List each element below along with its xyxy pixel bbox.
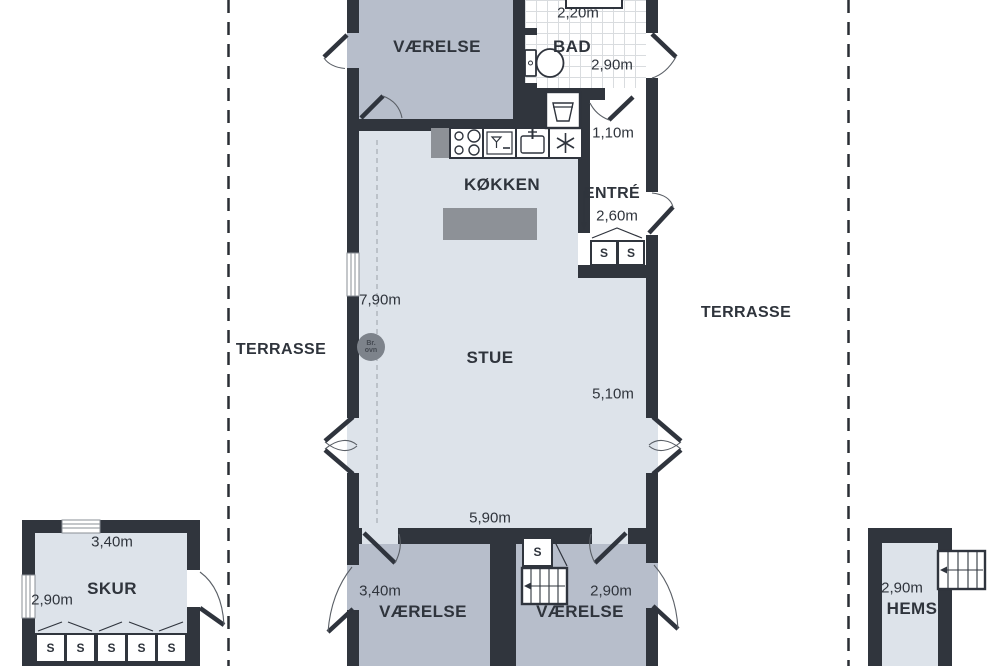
wardrobe-label: S — [167, 641, 175, 655]
wood-stove-label: ovn — [365, 347, 377, 354]
wardrobe-box: S — [617, 240, 645, 266]
wardrobe-label: S — [600, 246, 608, 260]
wall — [646, 473, 658, 563]
room-label-bad: BAD — [553, 37, 591, 57]
door-gap — [347, 418, 359, 473]
wardrobe-label: S — [533, 545, 541, 559]
dim-stue-left: 7,90m — [359, 292, 401, 309]
stairs-icon — [938, 551, 985, 589]
door-gap — [347, 565, 359, 610]
wall — [22, 520, 200, 533]
door-gap — [347, 33, 359, 68]
room-label-entre: ENTRÉ — [584, 185, 640, 203]
wall — [938, 589, 952, 666]
dim-hall: 1,10m — [592, 125, 634, 142]
room-label-hems: HEMS — [887, 599, 938, 619]
door-gap — [362, 528, 398, 544]
wardrobe-label: S — [627, 246, 635, 260]
wall — [938, 528, 952, 551]
dim-bad-top: 2,20m — [557, 5, 599, 22]
wardrobe-box: S — [96, 633, 127, 663]
wardrobe-box: S — [35, 633, 66, 663]
dim-vaerelse-right: 2,90m — [590, 583, 632, 600]
room-floor-vaerelse-top — [359, 0, 513, 119]
wardrobe-box: S — [126, 633, 157, 663]
room-label-stue: STUE — [467, 348, 514, 368]
dim-entre: 2,60m — [596, 208, 638, 225]
wardrobe-box: S — [522, 537, 553, 567]
outdoor-label-terrasse-left: TERRASSE — [236, 341, 326, 359]
dim-bad-right: 2,90m — [591, 57, 633, 74]
wardrobe-label: S — [107, 641, 115, 655]
room-floor-entre-hall — [590, 88, 646, 265]
wood-stove-icon: Br. ovn — [357, 333, 385, 361]
wall — [347, 473, 359, 565]
wall — [347, 528, 362, 544]
room-label-vaerelse-left: VÆRELSE — [379, 602, 467, 622]
door-gap — [646, 418, 658, 473]
wall — [646, 235, 658, 418]
dim-stue-bottom: 5,90m — [469, 510, 511, 527]
wall — [525, 88, 605, 100]
wall — [490, 528, 516, 666]
dim-skur-top: 3,40m — [91, 534, 133, 551]
wardrobe-box: S — [590, 240, 618, 266]
room-label-vaerelse-top: VÆRELSE — [393, 37, 481, 57]
wardrobe-box: S — [156, 633, 187, 663]
wardrobe-label: S — [137, 641, 145, 655]
room-label-vaerelse-right: VÆRELSE — [536, 602, 624, 622]
wall — [578, 131, 590, 233]
outdoor-label-terrasse-right: TERRASSE — [701, 304, 791, 322]
wood-stove-label: Br. — [366, 340, 375, 347]
wall — [347, 610, 359, 666]
wardrobe-box: S — [65, 633, 96, 663]
wall — [525, 100, 590, 131]
room-label-skur: SKUR — [87, 579, 137, 599]
wall — [646, 608, 658, 666]
wall — [646, 78, 658, 192]
wardrobe-label: S — [46, 641, 54, 655]
wall — [513, 0, 525, 131]
kitchen-island — [443, 208, 537, 240]
wardrobe-label: S — [76, 641, 84, 655]
dim-stue-right: 5,10m — [592, 386, 634, 403]
door-gap — [592, 528, 628, 544]
wall — [347, 0, 359, 33]
entre-opening — [578, 233, 590, 265]
floor-plan: S S S S S S S S Br. ovn VÆRELSE BAD 2,20… — [0, 0, 1000, 666]
wall — [646, 0, 658, 33]
wall — [882, 528, 938, 543]
wall — [187, 533, 200, 570]
wall — [578, 265, 658, 278]
dim-hems: 2,90m — [881, 580, 923, 597]
dim-skur-left: 2,90m — [31, 592, 73, 609]
wall — [628, 528, 658, 544]
room-label-koekken: KØKKEN — [464, 175, 540, 195]
kitchen-counter — [431, 128, 450, 158]
door-gap — [646, 563, 658, 608]
dim-vaerelse-left: 3,40m — [359, 583, 401, 600]
wall — [868, 528, 882, 666]
wall — [525, 28, 537, 35]
